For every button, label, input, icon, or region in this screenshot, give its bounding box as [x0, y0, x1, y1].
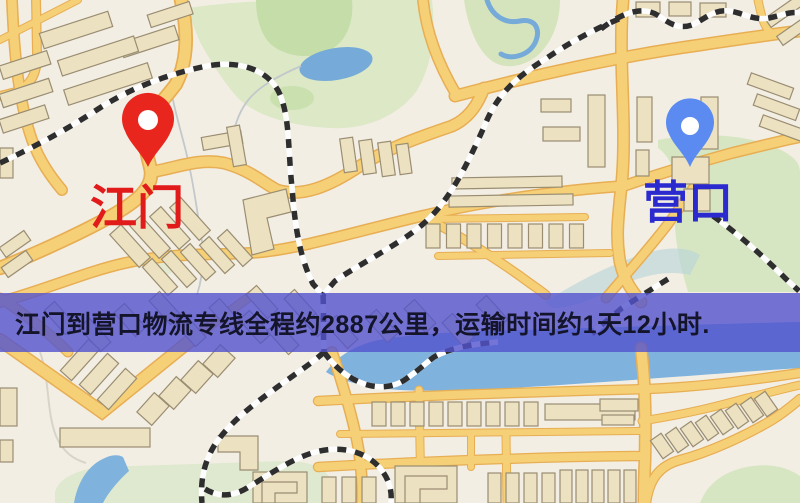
route-info-banner: 江门到营口物流专线全程约2887公里，运输时间约1天12小时. [0, 293, 800, 352]
map-canvas[interactable]: 江门 营口 江门到营口物流专线全程约2887公里，运输时间约1天12小时. [0, 0, 800, 503]
route-info-text: 江门到营口物流专线全程约2887公里，运输时间约1天12小时. [15, 305, 710, 341]
destination-label: 营口 [643, 176, 733, 229]
origin-label: 江门 [90, 181, 184, 236]
